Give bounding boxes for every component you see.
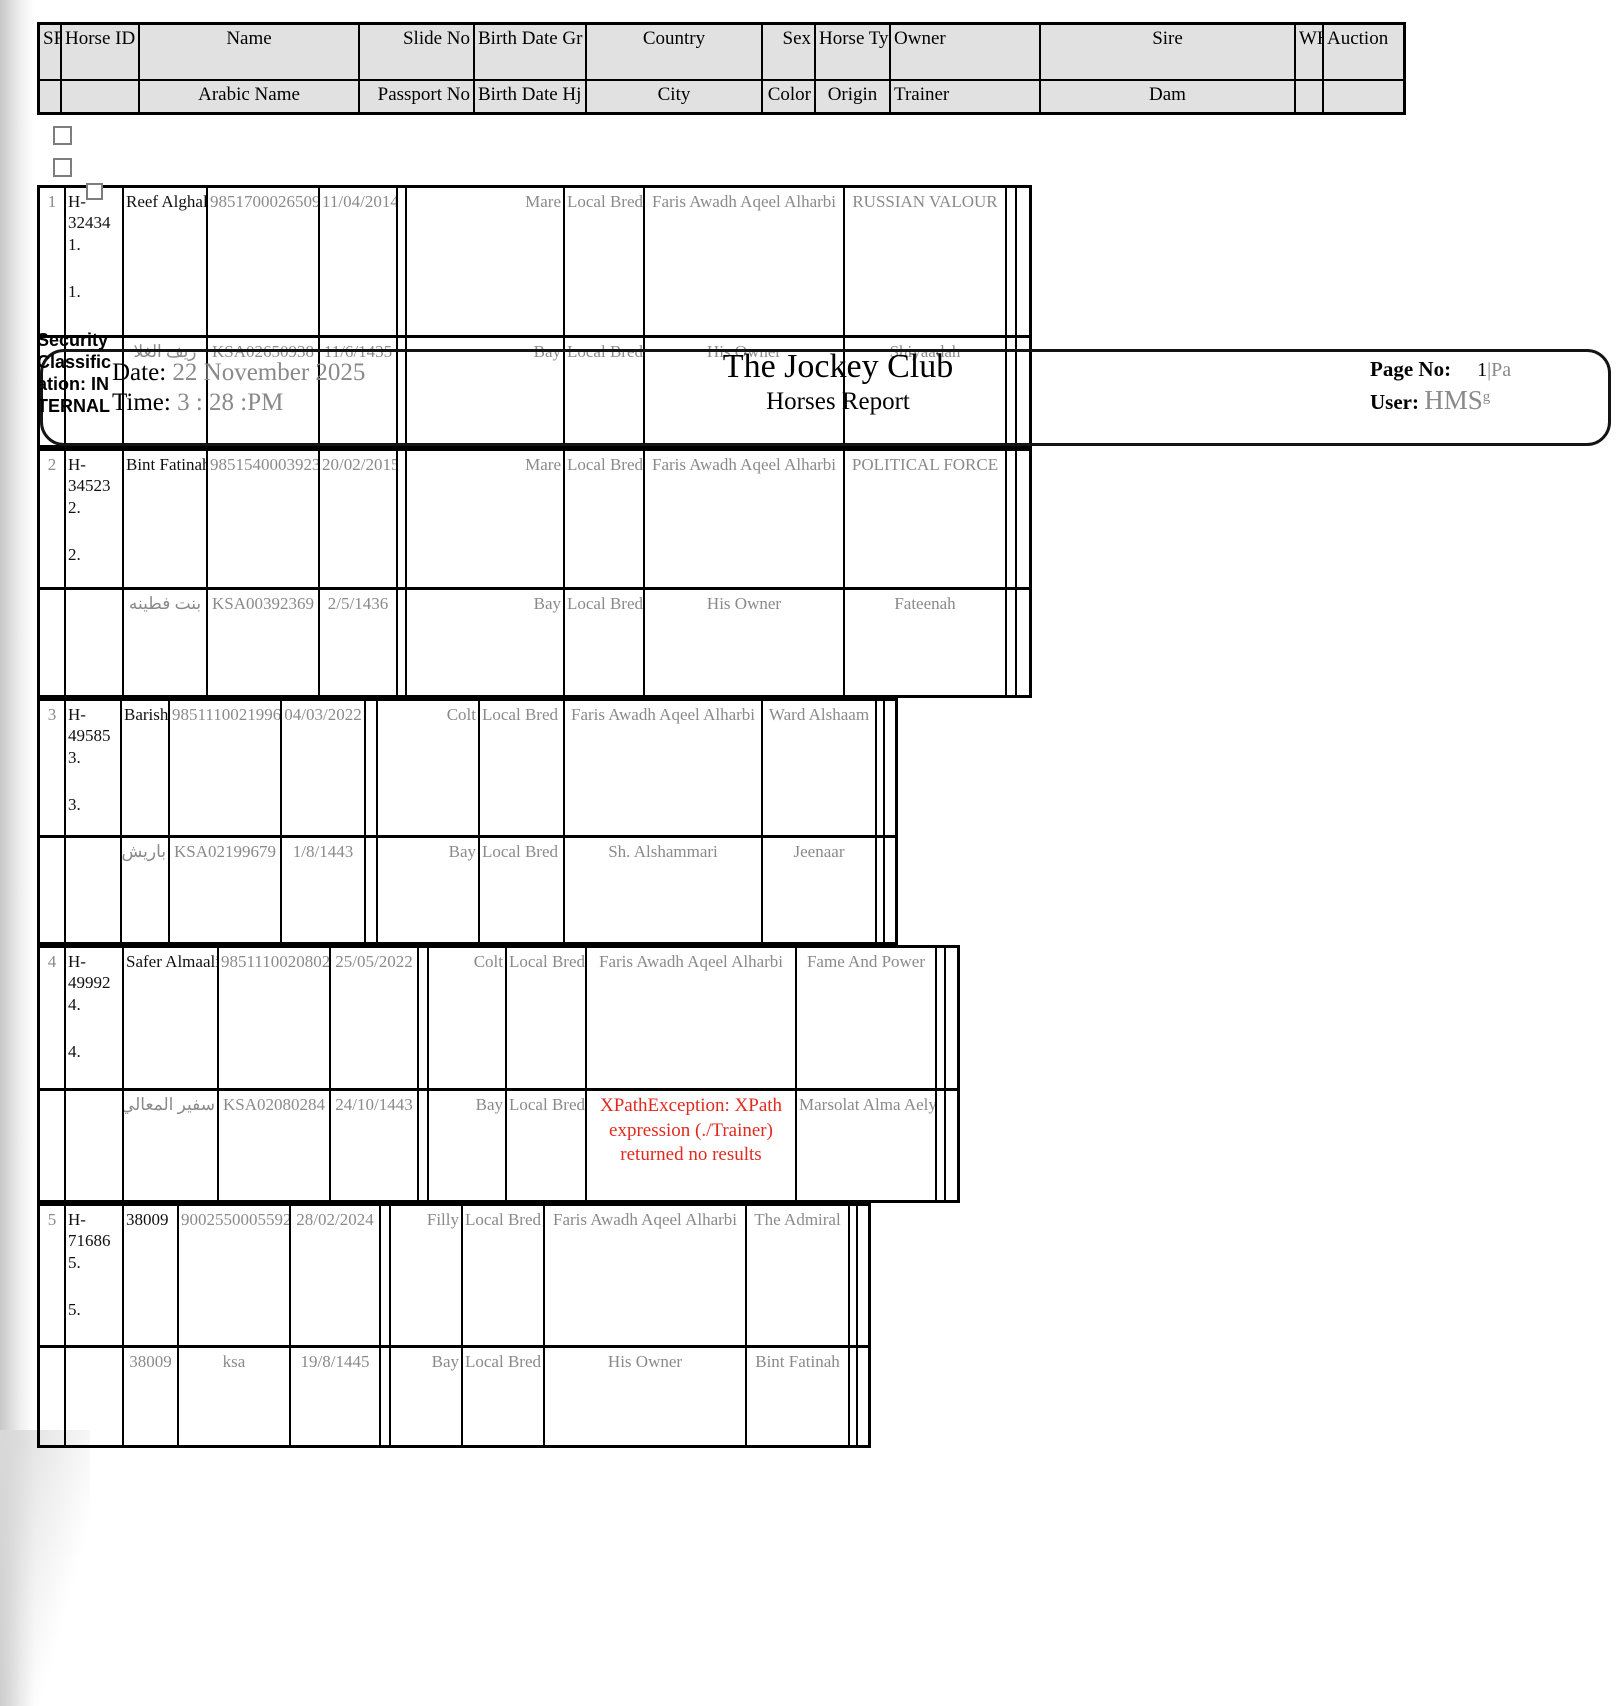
- cell-arabic-name: باريش: [122, 838, 170, 942]
- header-sex: Sex: [763, 25, 816, 79]
- cell-trainer: His Owner: [545, 1348, 747, 1445]
- page-no-suffix: |Pa: [1487, 359, 1511, 381]
- row-marker: 2.: [68, 544, 120, 565]
- cell-sire: Ward Alshaam: [763, 701, 877, 835]
- row-marker: 3.: [68, 747, 118, 768]
- row-marker: 3.: [68, 794, 118, 815]
- spacer-cell: [398, 451, 407, 587]
- cell-slide-no: 985154000392369: [208, 451, 320, 587]
- date-label: Date:: [112, 359, 166, 386]
- spacer-cell: [885, 701, 895, 835]
- row-main: 1 H-32434 1. 1. Reef Alghala 98517000265…: [40, 188, 1029, 335]
- cell-birth-date-gr: 20/02/2015: [320, 451, 398, 587]
- cell-birth-date-hj: 2/5/1436: [320, 590, 398, 695]
- header-trainer: Trainer: [891, 81, 1041, 112]
- row-secondary: بنت فطينه KSA00392369 2/5/1436 Bay Local…: [40, 587, 1029, 695]
- cell-birth-date-gr: 11/04/2014: [320, 188, 398, 335]
- cell-horse-id: H-32434 1. 1.: [66, 188, 124, 335]
- cell-origin: Local Bred: [507, 1091, 587, 1200]
- cell-color: Bay: [429, 1091, 507, 1200]
- header-name: Name: [140, 25, 360, 79]
- spacer-cell: [877, 838, 885, 942]
- cell-dam: Fateenah: [845, 590, 1007, 695]
- spacer-cell: [66, 1091, 124, 1200]
- header-country: Country: [587, 25, 763, 79]
- cell-sire: The Admiral: [747, 1206, 850, 1345]
- date-value: 22 November 2025: [172, 359, 365, 386]
- spacer-cell: [398, 188, 407, 335]
- page-no-line: Page No:1|Pa: [1370, 356, 1511, 384]
- header-city: City: [587, 81, 763, 112]
- spacer-cell: [858, 1206, 868, 1345]
- row-marker: 1.: [68, 234, 120, 255]
- cell-birth-date-gr: 25/05/2022: [331, 948, 419, 1088]
- cell-color: Bay: [391, 1348, 463, 1445]
- header-owner: Owner: [891, 25, 1041, 79]
- header-origin: Origin: [816, 81, 891, 112]
- row-marker: 5.: [68, 1252, 120, 1273]
- header-color: Color: [763, 81, 816, 112]
- cell-horse-id: H-49992 4. 4.: [66, 948, 124, 1088]
- header-horse-type: Horse Ty: [816, 25, 891, 79]
- cell-sr: 2: [40, 451, 66, 587]
- cell-passport-no: KSA02199679: [170, 838, 282, 942]
- user-value-superscript: g: [1483, 389, 1491, 405]
- report-title: The Jockey Club: [438, 349, 1238, 385]
- header-dam: Dam: [1041, 81, 1296, 112]
- spacer-cell: [40, 1091, 66, 1200]
- cell-owner: Faris Awadh Aqeel Alharbi: [645, 188, 845, 335]
- spacer-cell: [1017, 188, 1029, 335]
- cell-sex: Colt: [378, 701, 480, 835]
- row-marker: 1.: [68, 281, 120, 302]
- cell-arabic-name: سفير المعالي: [124, 1091, 219, 1200]
- cell-owner: Faris Awadh Aqeel Alharbi: [645, 451, 845, 587]
- header-birth-date-gr: Birth Date Gr: [475, 25, 587, 79]
- cell-birth-date-gr: 04/03/2022: [282, 701, 366, 835]
- cell-horse-type: Local Bred: [463, 1206, 545, 1345]
- header-blank: [62, 81, 140, 112]
- cell-birth-date-gr: 28/02/2024: [291, 1206, 381, 1345]
- spacer-cell: [40, 1348, 66, 1445]
- cell-sex: Filly: [391, 1206, 463, 1345]
- report-subtitle: Horses Report: [438, 387, 1238, 417]
- cell-slide-no: 985111002080284: [219, 948, 331, 1088]
- row-marker: 4.: [68, 1041, 120, 1062]
- header-birth-date-hj: Birth Date Hj: [475, 81, 587, 112]
- cell-sr: 5: [40, 1206, 66, 1345]
- cell-color: Bay: [407, 590, 565, 695]
- time-value: 3 : 28 :PM: [177, 389, 283, 416]
- header-sr: SR: [40, 25, 62, 79]
- spacer-cell: [66, 590, 124, 695]
- checkbox[interactable]: [53, 126, 72, 145]
- spacer-cell: [858, 1348, 868, 1445]
- header-blank: [40, 81, 62, 112]
- page-user-block: Page No:1|Pa User: HMSg: [1370, 356, 1511, 416]
- cell-sex: Mare: [407, 451, 565, 587]
- spacer-cell: [40, 590, 66, 695]
- spacer-cell: [366, 838, 378, 942]
- spacer-cell: [885, 838, 895, 942]
- cell-dam: Bint Fatinah: [747, 1348, 850, 1445]
- cell-birth-date-hj: 24/10/1443: [331, 1091, 419, 1200]
- row-marker: 4.: [68, 994, 120, 1015]
- spacer-cell: [398, 590, 407, 695]
- header-row-2: Arabic Name Passport No Birth Date Hj Ci…: [40, 79, 1403, 112]
- header-blank: [1324, 81, 1403, 112]
- cell-horse-type: Local Bred: [480, 701, 565, 835]
- horse-id: H-71686: [68, 1209, 120, 1252]
- spacer-cell: [1007, 188, 1017, 335]
- header-sire: Sire: [1041, 25, 1296, 79]
- spacer-cell: [937, 948, 946, 1088]
- spacer-cell: [40, 838, 66, 942]
- security-classification: Security Classification: INTERNAL: [37, 329, 117, 417]
- horse-row-5: 5 H-71686 5. 5. 38009 900255000559276 28…: [37, 1203, 871, 1448]
- row-main: 2 H-34523 2. 2. Bint Fatinah 98515400039…: [40, 451, 1029, 587]
- cell-horse-type: Local Bred: [565, 451, 645, 587]
- header-blank: [1296, 81, 1324, 112]
- checkbox[interactable]: [53, 158, 72, 177]
- cell-name: Barish: [122, 701, 170, 835]
- cell-origin: Local Bred: [463, 1348, 545, 1445]
- page-no-value: 1: [1477, 359, 1487, 381]
- cell-slide-no: 985170002650938: [208, 188, 320, 335]
- user-line: User: HMSg: [1370, 384, 1511, 416]
- row-marker: 2.: [68, 497, 120, 518]
- cell-sr: 3: [40, 701, 66, 835]
- header-horse-id: Horse ID: [62, 25, 140, 79]
- cell-birth-date-hj: 1/8/1443: [282, 838, 366, 942]
- cell-horse-type: Local Bred: [565, 188, 645, 335]
- row-main: 4 H-49992 4. 4. Safer Almaali 9851110020…: [40, 948, 957, 1088]
- cell-passport-no: ksa: [179, 1348, 291, 1445]
- header-slide-no: Slide No: [360, 25, 475, 79]
- row-main: 3 H-49585 3. 3. Barish 985111002199679 0…: [40, 701, 895, 835]
- checkbox[interactable]: [86, 183, 103, 200]
- cell-horse-id: H-71686 5. 5.: [66, 1206, 124, 1345]
- cell-sire: RUSSIAN VALOUR: [845, 188, 1007, 335]
- cell-horse-id: H-34523 2. 2.: [66, 451, 124, 587]
- cell-name: Reef Alghala: [124, 188, 208, 335]
- page-no-label: Page No:: [1370, 357, 1451, 381]
- cell-sr: 4: [40, 948, 66, 1088]
- cell-trainer: Sh. Alshammari: [565, 838, 763, 942]
- cell-arabic-name: بنت فطينه: [124, 590, 208, 695]
- cell-sex: Colt: [429, 948, 507, 1088]
- spacer-cell: [1017, 590, 1029, 695]
- cell-sr: 1: [40, 188, 66, 335]
- header-arabic-name: Arabic Name: [140, 81, 360, 112]
- spacer-cell: [419, 948, 429, 1088]
- cell-arabic-name: 38009: [124, 1348, 179, 1445]
- cell-slide-no: 985111002199679: [170, 701, 282, 835]
- cell-passport-no: KSA00392369: [208, 590, 320, 695]
- cell-trainer: His Owner: [645, 590, 845, 695]
- cell-origin: Local Bred: [565, 590, 645, 695]
- row-secondary: سفير المعالي KSA02080284 24/10/1443 Bay …: [40, 1088, 957, 1200]
- cell-color: Bay: [378, 838, 480, 942]
- spacer-cell: [66, 838, 122, 942]
- cell-birth-date-hj: 19/8/1445: [291, 1348, 381, 1445]
- spacer-cell: [877, 701, 885, 835]
- spacer-cell: [1007, 451, 1017, 587]
- spacer-cell: [381, 1206, 391, 1345]
- cell-sex: Mare: [407, 188, 565, 335]
- cell-slide-no: 900255000559276: [179, 1206, 291, 1345]
- cell-owner: Faris Awadh Aqeel Alharbi: [587, 948, 797, 1088]
- cell-sire: POLITICAL FORCE: [845, 451, 1007, 587]
- cell-passport-no: KSA02080284: [219, 1091, 331, 1200]
- row-secondary: 38009 ksa 19/8/1445 Bay Local Bred His O…: [40, 1345, 868, 1445]
- spacer-cell: [850, 1348, 858, 1445]
- trainer-error-message: XPathException: XPath expression (./Trai…: [587, 1091, 797, 1200]
- cell-dam: Marsolat Alma Aely: [797, 1091, 937, 1200]
- header-row-1: SR Horse ID Name Slide No Birth Date Gr …: [40, 25, 1403, 79]
- spacer-cell: [66, 1348, 124, 1445]
- user-value: HMS: [1424, 385, 1483, 415]
- spacer-cell: [937, 1091, 946, 1200]
- horse-row-3: 3 H-49585 3. 3. Barish 985111002199679 0…: [37, 698, 898, 945]
- cell-name: Bint Fatinah: [124, 451, 208, 587]
- date-line: Date: 22 November 2025: [112, 358, 365, 388]
- date-time-block: Date: 22 November 2025 Time: 3 : 28 :PM: [112, 358, 365, 418]
- spacer-cell: [946, 1091, 957, 1200]
- row-secondary: باريش KSA02199679 1/8/1443 Bay Local Bre…: [40, 835, 895, 942]
- time-line: Time: 3 : 28 :PM: [112, 388, 365, 418]
- report-table-header: SR Horse ID Name Slide No Birth Date Gr …: [37, 22, 1406, 115]
- cell-name: 38009: [124, 1206, 179, 1345]
- cell-dam: Jeenaar: [763, 838, 877, 942]
- cell-horse-type: Local Bred: [507, 948, 587, 1088]
- report-title-block: The Jockey Club Horses Report: [438, 349, 1238, 417]
- cell-horse-id: H-49585 3. 3.: [66, 701, 122, 835]
- horse-id: H-34523: [68, 454, 120, 497]
- cell-origin: Local Bred: [480, 838, 565, 942]
- horse-row-2: 2 H-34523 2. 2. Bint Fatinah 98515400039…: [37, 448, 1032, 698]
- header-auction: Auction: [1324, 25, 1403, 79]
- horse-id: H-49992: [68, 951, 120, 994]
- spacer-cell: [850, 1206, 858, 1345]
- user-label: User:: [1370, 390, 1419, 414]
- time-label: Time:: [112, 389, 171, 416]
- bottom-left-gradient: [0, 1430, 90, 1706]
- header-wht: WHT: [1296, 25, 1324, 79]
- row-main: 5 H-71686 5. 5. 38009 900255000559276 28…: [40, 1206, 868, 1345]
- spacer-cell: [381, 1348, 391, 1445]
- cell-owner: Faris Awadh Aqeel Alharbi: [565, 701, 763, 835]
- header-passport-no: Passport No: [360, 81, 475, 112]
- cell-owner: Faris Awadh Aqeel Alharbi: [545, 1206, 747, 1345]
- spacer-cell: [419, 1091, 429, 1200]
- spacer-cell: [1017, 451, 1029, 587]
- horse-id: H-49585: [68, 704, 118, 747]
- cell-name: Safer Almaali: [124, 948, 219, 1088]
- cell-sire: Fame And Power: [797, 948, 937, 1088]
- spacer-cell: [946, 948, 957, 1088]
- report-page: SR Horse ID Name Slide No Birth Date Gr …: [0, 0, 1624, 1706]
- horse-row-4: 4 H-49992 4. 4. Safer Almaali 9851110020…: [37, 945, 960, 1203]
- row-marker: 5.: [68, 1299, 120, 1320]
- spacer-cell: [366, 701, 378, 835]
- spacer-cell: [1007, 590, 1017, 695]
